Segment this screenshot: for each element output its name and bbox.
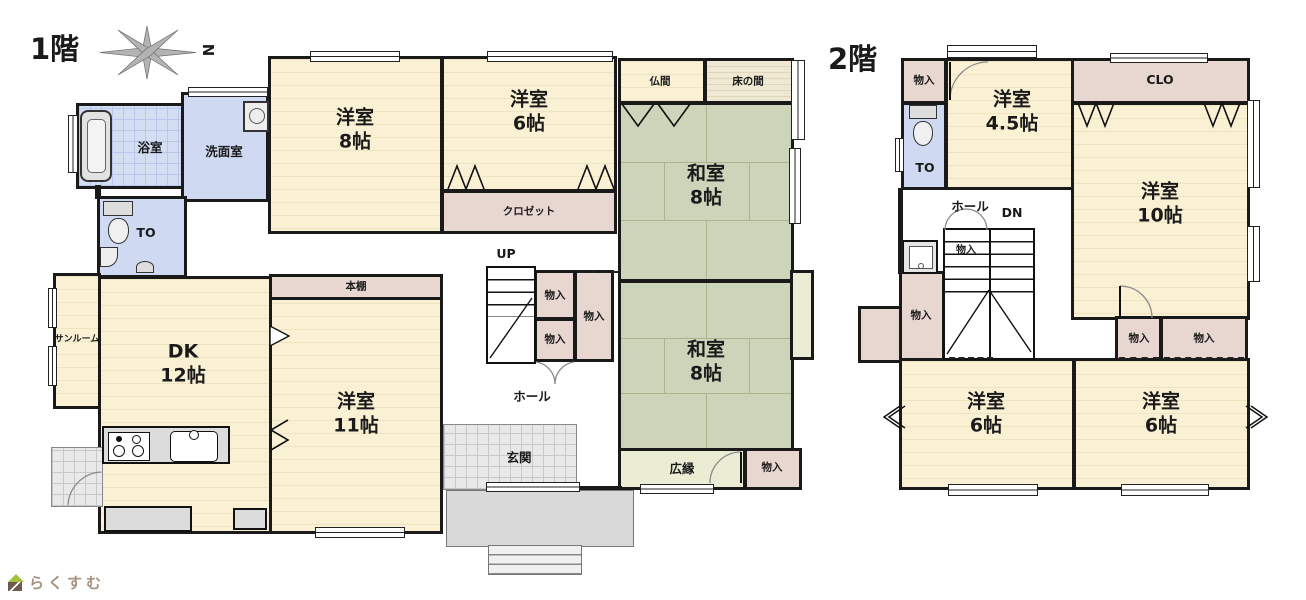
window <box>947 45 1037 58</box>
window <box>68 115 78 173</box>
label-butsuma: 仏間 <box>650 75 671 88</box>
label-west6: 洋室6帖 <box>510 88 548 136</box>
window <box>310 51 400 62</box>
toilet-bowl-icon-1f <box>108 218 129 244</box>
dashed-wall <box>949 357 993 359</box>
label-hiroen: 広縁 <box>669 461 694 477</box>
dashed-wall <box>1164 357 1244 359</box>
dashed-wall <box>578 271 618 273</box>
corridor-2f <box>1071 316 1117 362</box>
wall-seg <box>95 185 101 199</box>
washbasin-icon-2f <box>902 240 938 274</box>
label-toilet-2f: TO <box>915 160 934 176</box>
label-stairs-dn: DN <box>1002 205 1023 221</box>
window <box>948 484 1038 496</box>
room-monoiri-left-bump-2f <box>858 306 902 363</box>
label-west8: 洋室8帖 <box>336 106 374 154</box>
terrace-1f <box>51 447 103 507</box>
window <box>789 148 801 224</box>
label-hall-2f: ホール <box>951 199 989 215</box>
dashed-wall <box>1119 357 1159 359</box>
label-west6b: 洋室6帖 <box>1142 390 1180 438</box>
engawa-strip-1f <box>790 270 814 360</box>
label-monoiri-s2: 物入 <box>545 333 566 346</box>
label-monoiri-s3: 物入 <box>584 310 605 323</box>
window <box>48 288 57 328</box>
label-washitsu-a: 和室8帖 <box>687 162 725 210</box>
label-west6a: 洋室6帖 <box>967 390 1005 438</box>
label-sunroom: サンルーム <box>55 334 100 345</box>
window <box>315 527 405 538</box>
floor1-title: 1階 <box>30 26 79 68</box>
label-monoiri-left-2f: 物入 <box>911 309 932 322</box>
small-sink-icon-1f <box>136 261 154 273</box>
window <box>1110 53 1208 63</box>
window <box>1121 484 1209 496</box>
entrance-door <box>486 482 580 492</box>
site-logo: らくすむ <box>8 572 105 593</box>
wall-seg <box>577 486 622 490</box>
entrance-steps-1f <box>488 545 582 575</box>
washbasin-icon-1f <box>243 101 269 132</box>
dk-cabinet-a <box>104 506 192 532</box>
label-hall-1f: ホール <box>513 389 551 405</box>
toilet-tank-icon-1f <box>103 201 133 216</box>
label-genkan: 玄関 <box>506 450 531 466</box>
compass-icon <box>100 26 196 79</box>
label-monoiri-corner: 物入 <box>762 461 783 474</box>
dk-cabinet-b <box>233 508 267 530</box>
label-bookshelf: 本棚 <box>346 280 367 293</box>
room-dk-1f <box>98 276 272 534</box>
window <box>895 138 904 172</box>
label-monoiri-stair-2f: 物入 <box>956 245 976 258</box>
floor2-title: 2階 <box>828 36 877 78</box>
label-washitsu-b: 和室8帖 <box>687 338 725 386</box>
label-washroom: 洗面室 <box>205 144 243 160</box>
window <box>487 51 613 62</box>
label-monoiri-mid2-2f: 物入 <box>1194 332 1215 345</box>
floorplan-canvas: 1階 <box>0 0 1306 600</box>
window <box>791 60 805 140</box>
logo-house-icon <box>8 574 24 591</box>
label-tokonoma: 床の間 <box>732 75 764 88</box>
kitchen-sink-icon <box>170 431 218 462</box>
label-stairs-up: UP <box>496 246 515 262</box>
label-dk: DK12帖 <box>160 340 205 388</box>
corridor-strip-1f <box>184 232 445 278</box>
label-west45: 洋室4.5帖 <box>986 88 1039 136</box>
label-bath: 浴室 <box>137 140 162 156</box>
label-monoiri-mid1-2f: 物入 <box>1129 332 1150 345</box>
label-toilet-1f: TO <box>136 225 155 241</box>
bathtub-icon <box>80 110 112 182</box>
porch-1f <box>446 490 634 547</box>
stove-icon <box>108 432 150 461</box>
toilet-bowl-icon-2f <box>913 121 933 146</box>
label-west11: 洋室11帖 <box>333 390 378 438</box>
label-monoiri-s1: 物入 <box>545 289 566 302</box>
label-monoiri-top-2f: 物入 <box>914 74 935 87</box>
label-closet: クロゼット <box>503 205 556 218</box>
logo-text: らくすむ <box>29 572 105 593</box>
window <box>1247 226 1260 282</box>
label-clo: CLO <box>1146 72 1173 88</box>
stairs-1f <box>486 266 536 364</box>
toilet-tank-icon-2f <box>909 105 937 119</box>
genkan-side-1f <box>577 424 618 488</box>
window <box>188 87 268 97</box>
kitchen-counter <box>102 426 230 464</box>
wall-seg <box>898 188 903 274</box>
label-west10: 洋室10帖 <box>1137 180 1182 228</box>
window <box>640 484 714 494</box>
compass-north-label: N <box>199 44 217 57</box>
window <box>48 346 57 386</box>
window <box>1247 100 1260 188</box>
